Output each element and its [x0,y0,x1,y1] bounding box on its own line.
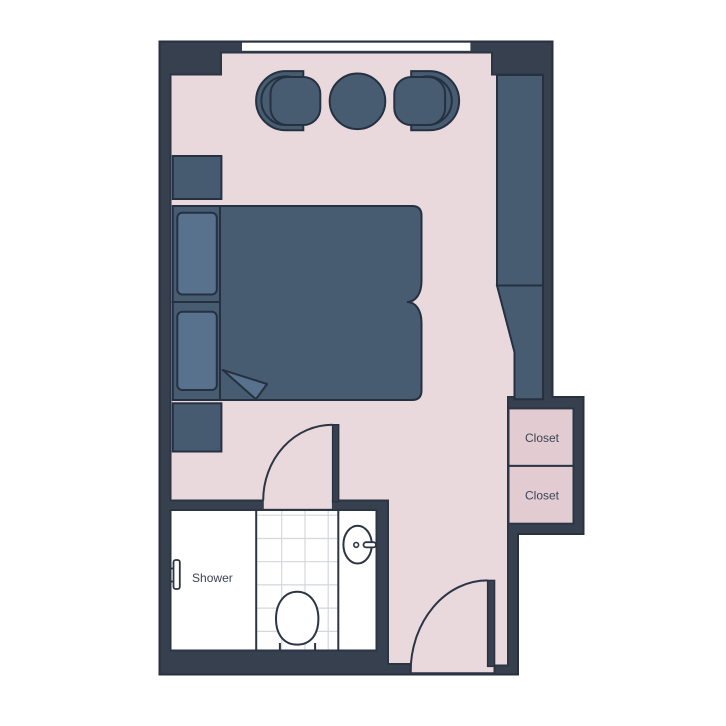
svg-text:Closet: Closet [525,431,560,445]
svg-text:Closet: Closet [525,489,560,503]
svg-text:Shower: Shower [192,571,233,585]
